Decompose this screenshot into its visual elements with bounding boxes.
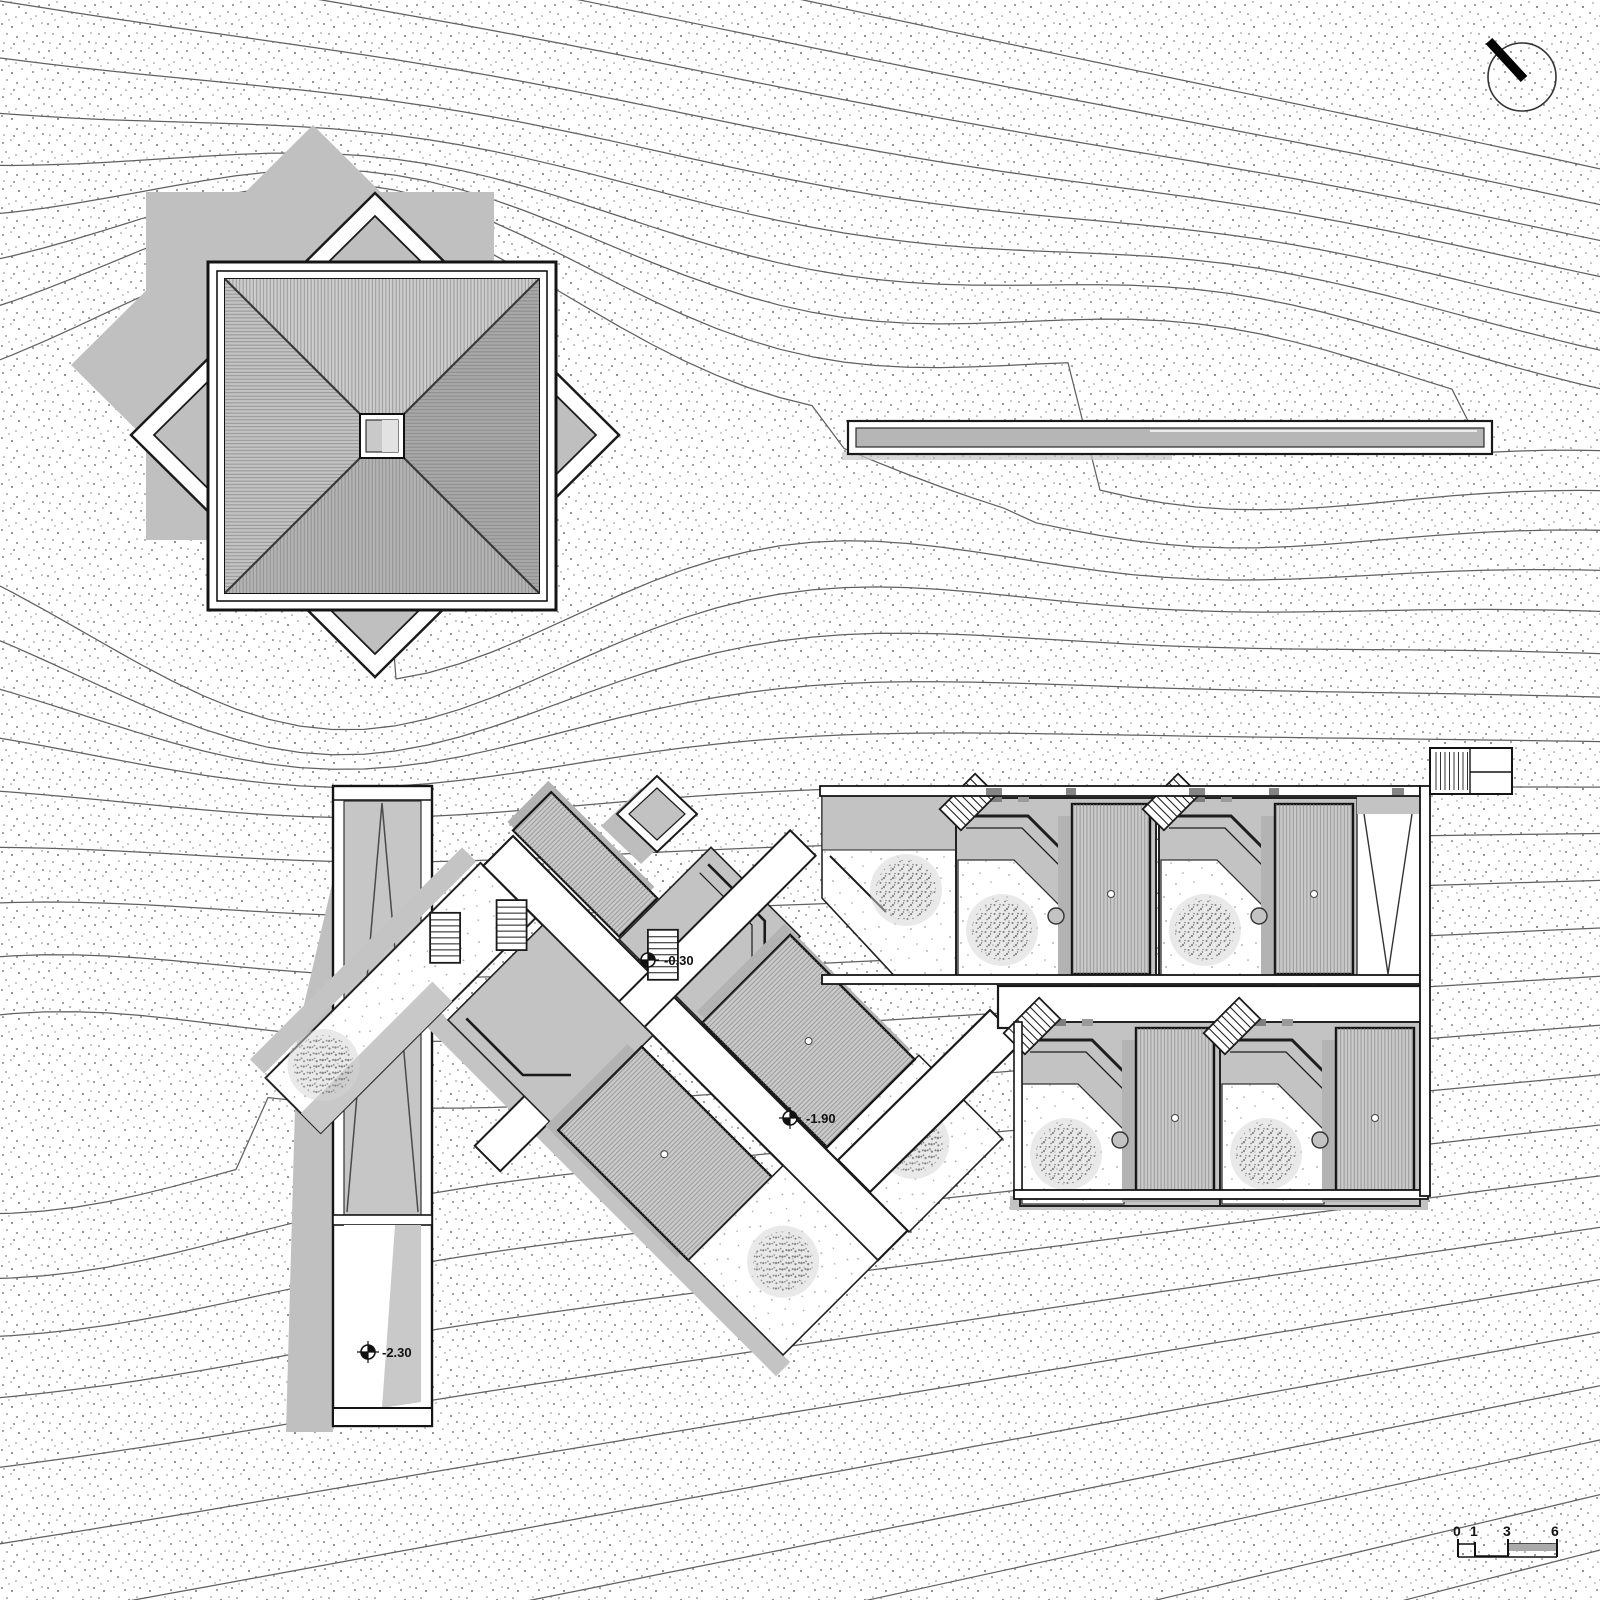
scale-label-6: 6: [1551, 1523, 1559, 1539]
boundary-wall: [820, 786, 1420, 796]
scale-label-0: 0: [1453, 1523, 1461, 1539]
scale-label-3: 3: [1503, 1523, 1511, 1539]
court-level-label: -2.30: [382, 1345, 412, 1360]
site-plan-sheet: -2.30: [0, 0, 1600, 1600]
crossing-level-label: -0.30: [664, 953, 694, 968]
scale-label-1: 1: [1470, 1523, 1478, 1539]
wing-stair-icon: [497, 900, 527, 950]
tail-stair-icon: [430, 913, 460, 963]
spine-level-label: -1.90: [806, 1111, 836, 1126]
housing-unit: [1204, 998, 1420, 1206]
housing-unit: [940, 774, 1156, 982]
housing-unit: [1004, 998, 1220, 1206]
east-wall: [1420, 786, 1430, 1196]
linear-wall-bar: [842, 421, 1492, 460]
site-plan-drawing: -2.30: [0, 0, 1600, 1600]
north-east-stair: [1430, 748, 1512, 794]
housing-unit: [1143, 774, 1359, 982]
